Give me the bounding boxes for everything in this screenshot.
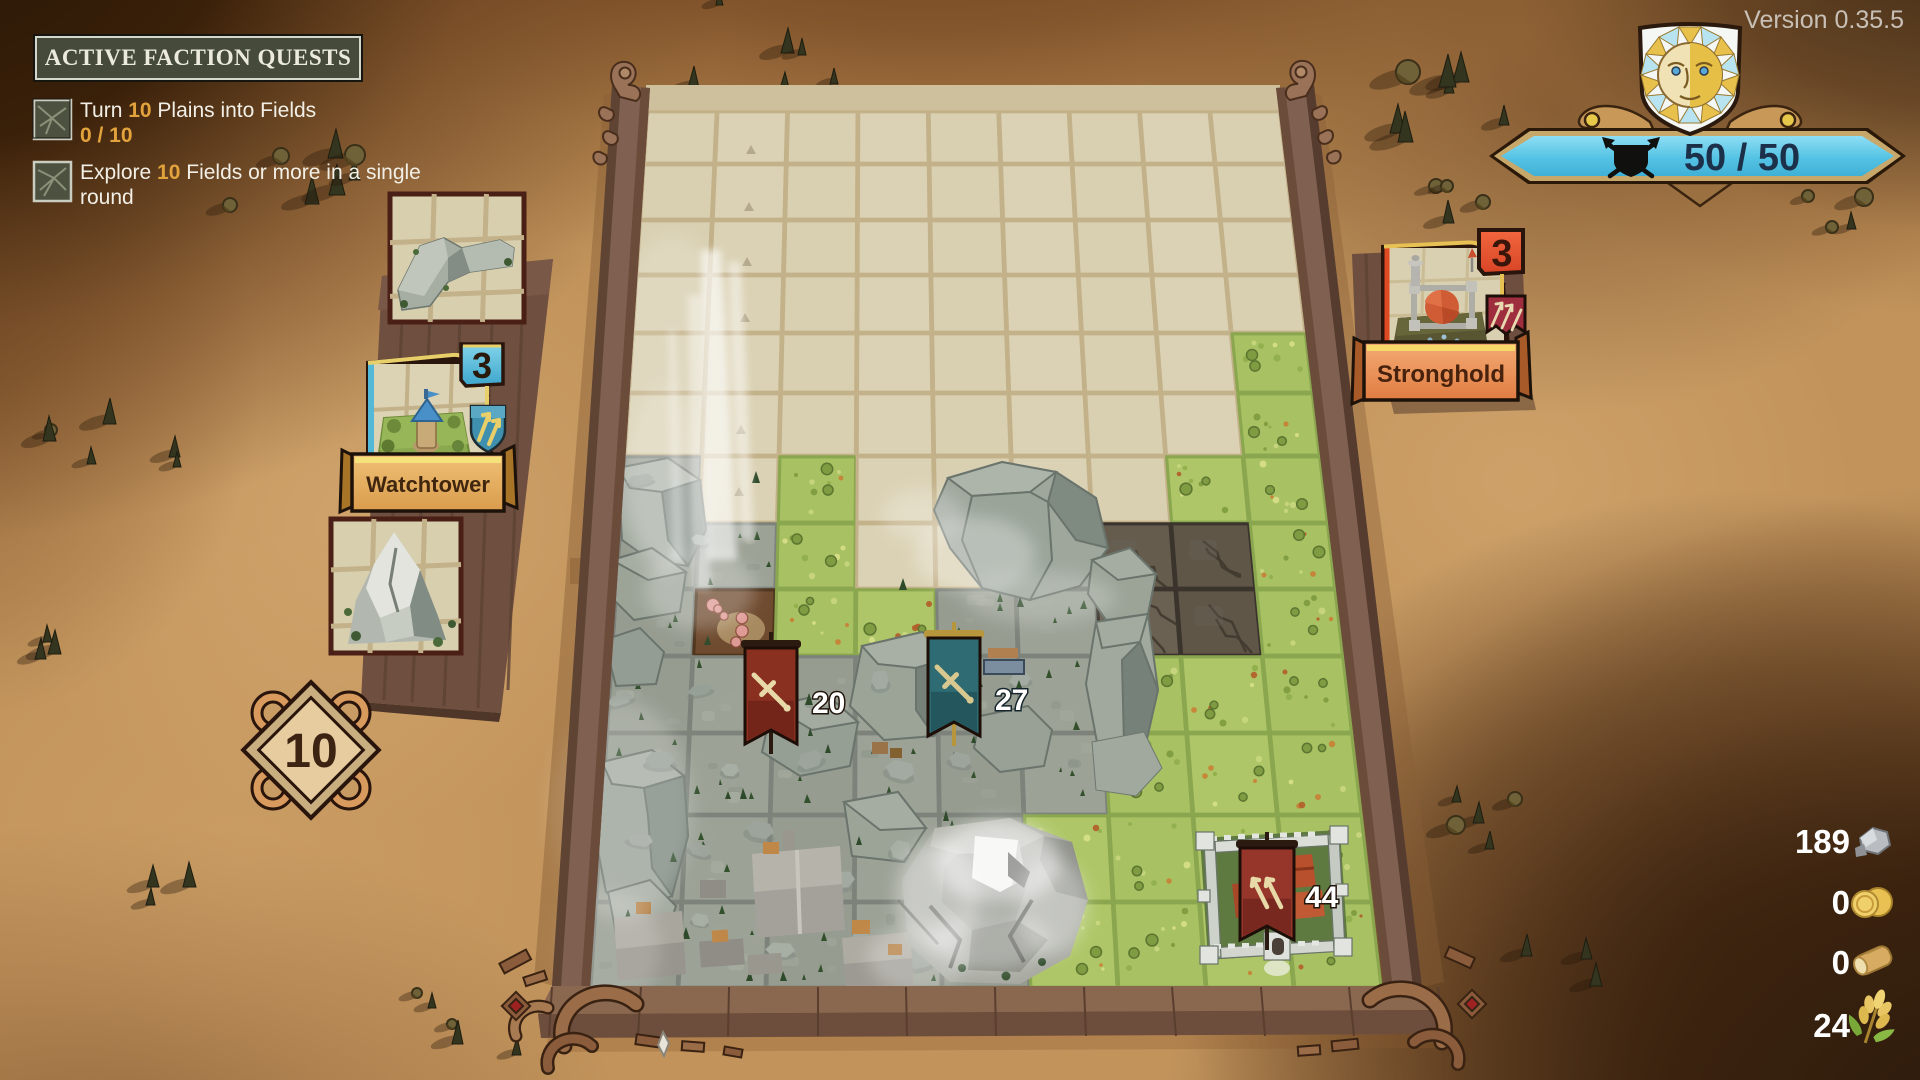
svg-text:10: 10	[284, 725, 337, 778]
svg-text:3: 3	[472, 345, 492, 386]
svg-text:Watchtower: Watchtower	[366, 472, 490, 497]
svg-text:44: 44	[1305, 881, 1339, 914]
svg-text:0: 0	[1832, 884, 1850, 921]
svg-text:27: 27	[995, 684, 1028, 717]
svg-text:Stronghold: Stronghold	[1377, 361, 1505, 388]
svg-text:24: 24	[1813, 1007, 1850, 1044]
svg-text:189: 189	[1795, 823, 1850, 860]
svg-text:0: 0	[1832, 944, 1850, 981]
svg-text:50 / 50: 50 / 50	[1684, 137, 1800, 179]
svg-text:3: 3	[1491, 233, 1512, 275]
svg-text:20: 20	[812, 687, 845, 720]
